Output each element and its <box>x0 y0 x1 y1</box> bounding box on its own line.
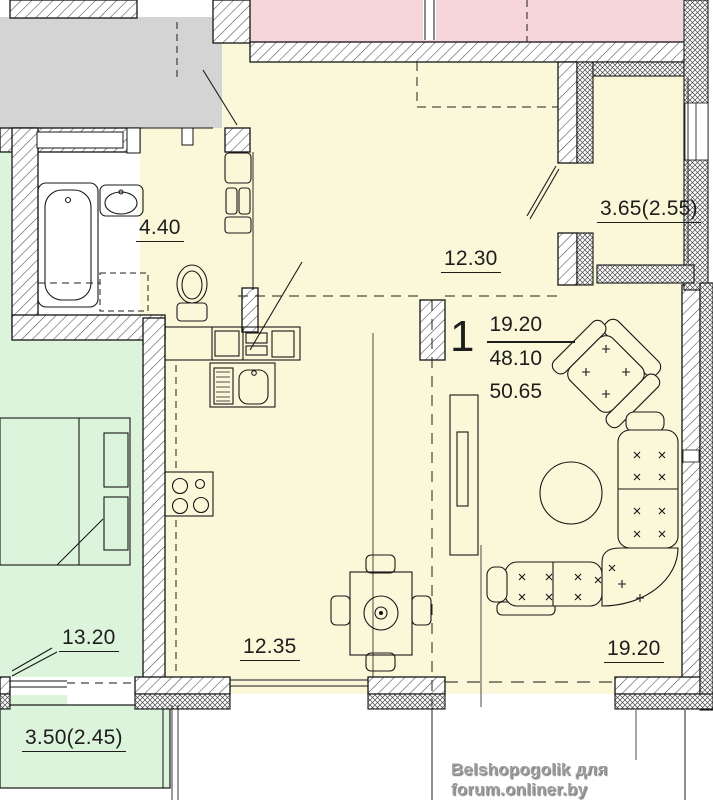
watermark: Belshopogolik для forum.onliner.by <box>451 760 713 800</box>
area-label-kitchen-dining: 12.35 <box>240 635 300 661</box>
stairwell-landing <box>0 17 222 128</box>
area-overall: 50.65 <box>487 371 575 404</box>
neighbor-room-pink <box>250 0 683 42</box>
sofa-armrest <box>626 412 664 432</box>
wall-notch <box>683 450 699 462</box>
neighbor-green-strip <box>0 152 11 332</box>
area-living-total: 19.20 <box>487 313 575 343</box>
apartment-summary: 1 19.20 48.10 50.65 <box>450 313 575 404</box>
area-apartment: 48.10 <box>487 343 575 371</box>
area-label-balcony-bottom: 3.50(2.45) <box>22 726 126 752</box>
area-label-bedroom: 12.30 <box>441 247 501 273</box>
wall-niche <box>37 132 123 148</box>
area-label-living: 19.20 <box>604 637 664 663</box>
floorplan-canvas <box>0 0 713 800</box>
area-label-hall: 4.40 <box>136 216 184 242</box>
floor-plan: 4.40 12.30 3.65(2.55) 13.20 12.35 19.20 … <box>0 0 713 800</box>
area-label-room-left: 13.20 <box>59 626 119 652</box>
door-jamb <box>182 128 193 145</box>
apartment-areas: 19.20 48.10 50.65 <box>487 313 575 404</box>
door-jamb <box>127 128 140 153</box>
apartment-number: 1 <box>450 315 474 404</box>
area-label-balcony-right: 3.65(2.55) <box>597 197 701 223</box>
sofa-armrest <box>487 567 507 602</box>
